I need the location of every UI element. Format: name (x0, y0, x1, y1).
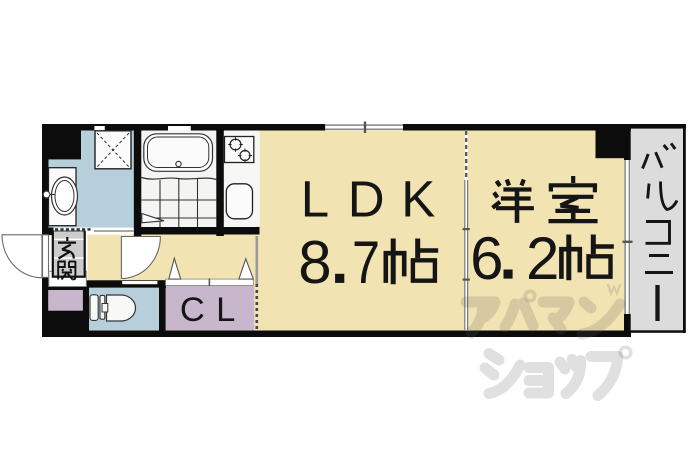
svg-text:6: 6 (470, 225, 503, 292)
svg-text:C: C (180, 291, 205, 329)
svg-text:K: K (401, 171, 435, 228)
svg-text:2: 2 (526, 225, 559, 292)
svg-text:8: 8 (298, 229, 331, 296)
svg-text:7: 7 (352, 229, 380, 296)
svg-text:L: L (216, 291, 235, 329)
svg-text:L: L (301, 171, 329, 228)
svg-text:D: D (348, 171, 385, 228)
